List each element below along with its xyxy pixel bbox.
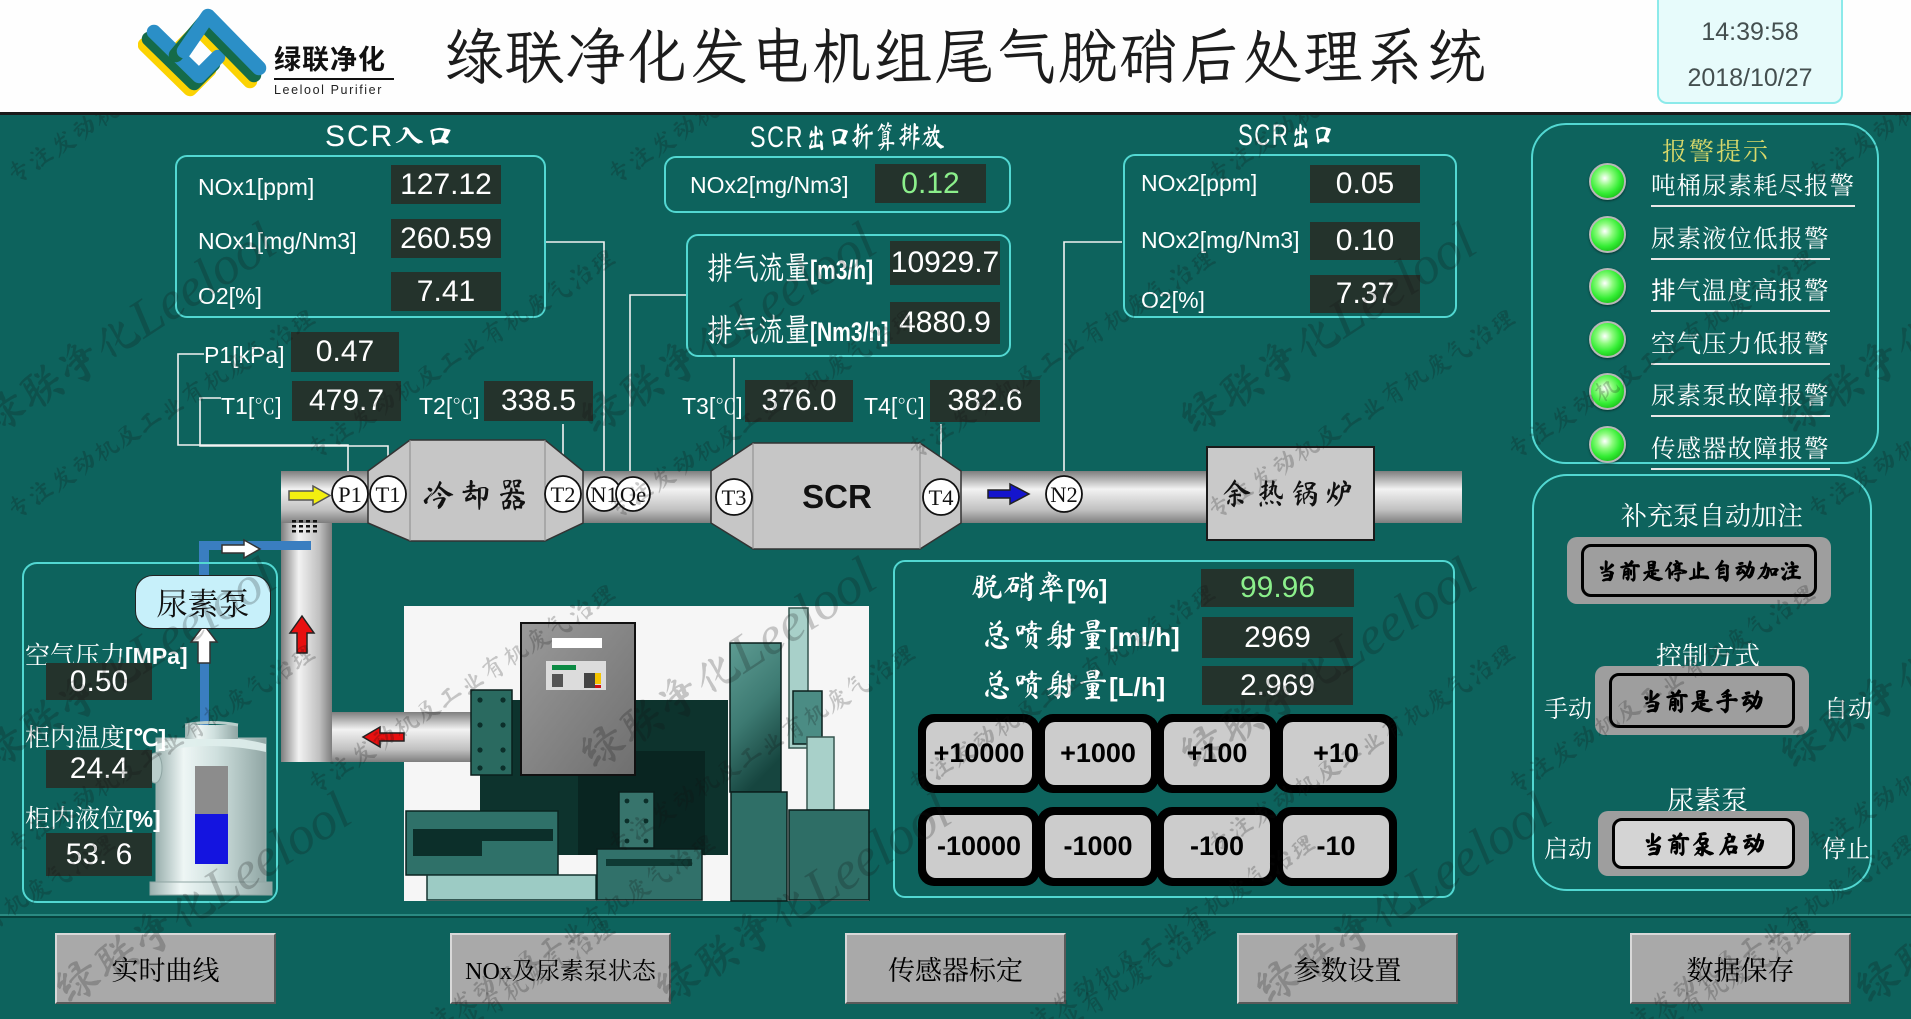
svg-text:T2: T2 bbox=[551, 482, 576, 507]
svg-text:Qe: Qe bbox=[620, 482, 646, 507]
svg-text:T1: T1 bbox=[376, 482, 401, 507]
svg-text:SCR: SCR bbox=[802, 478, 872, 515]
svg-text:P1: P1 bbox=[338, 482, 362, 507]
svg-text:余热锅炉: 余热锅炉 bbox=[1222, 478, 1358, 508]
svg-text:N2: N2 bbox=[1050, 482, 1078, 507]
svg-text:T3: T3 bbox=[722, 485, 747, 510]
svg-text:冷却器: 冷却器 bbox=[422, 478, 533, 512]
svg-text:T4: T4 bbox=[929, 485, 954, 510]
svg-text:N1: N1 bbox=[590, 482, 618, 507]
